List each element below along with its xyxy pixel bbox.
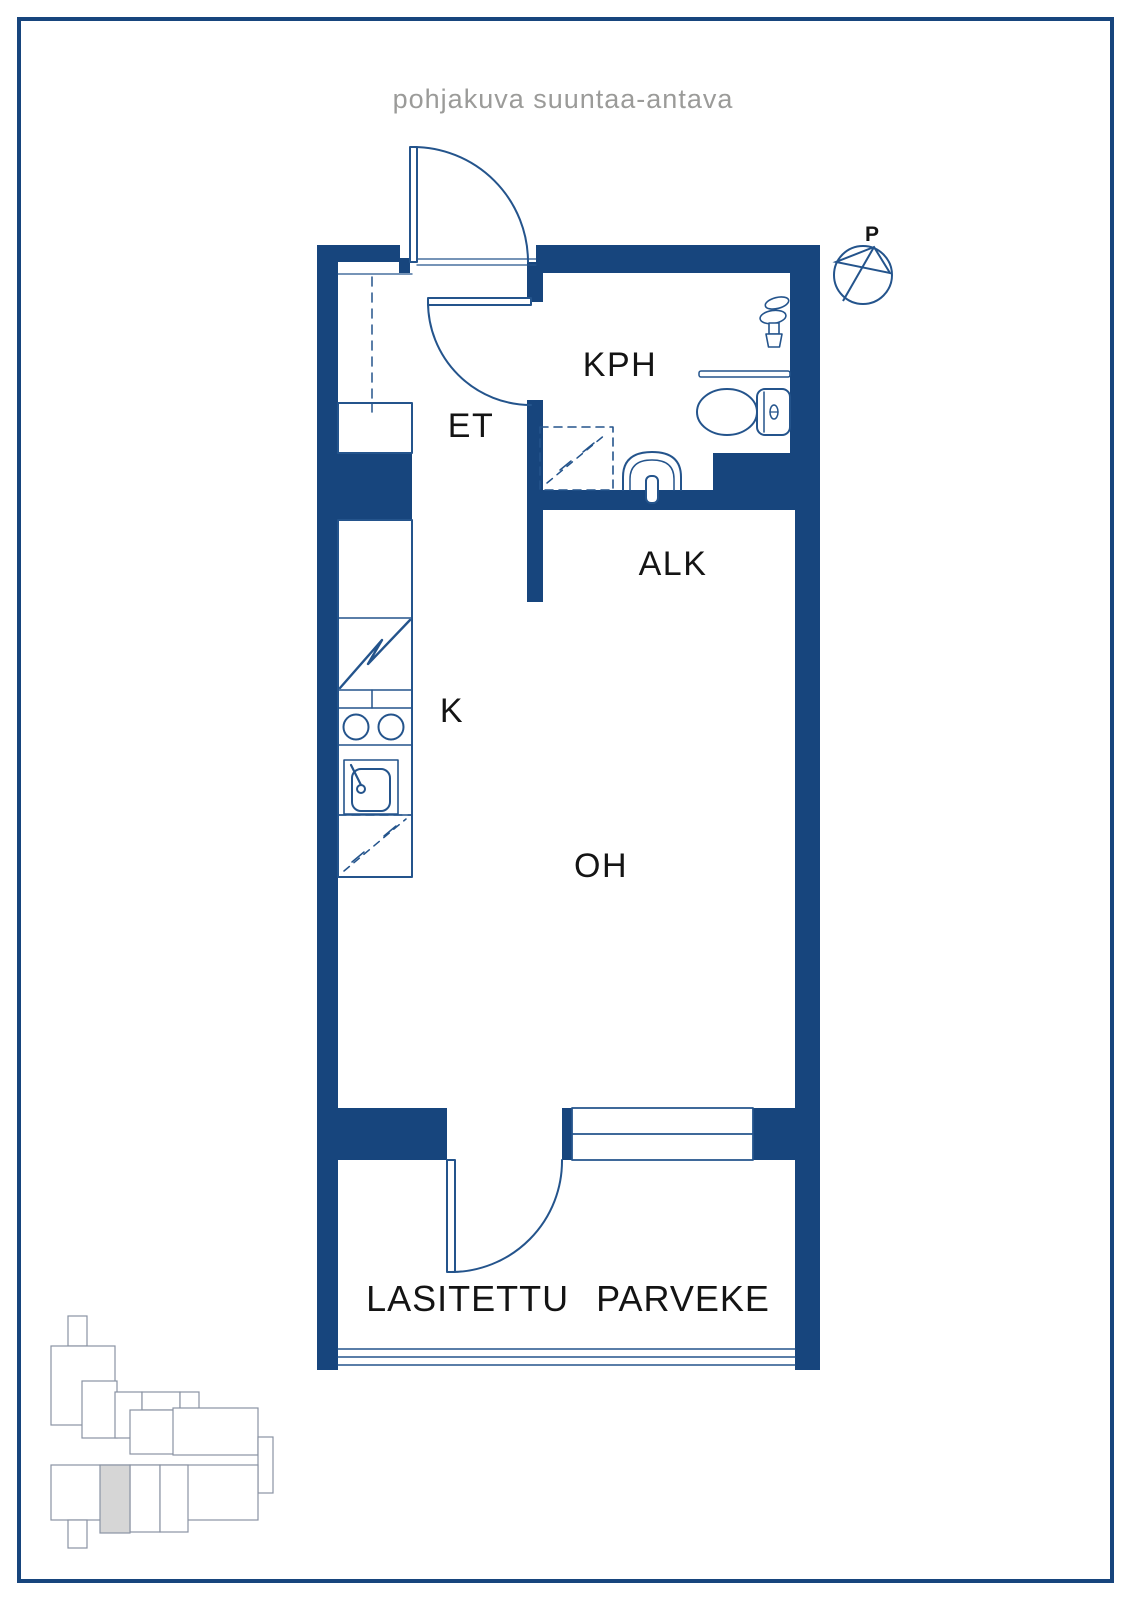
shower-handle <box>764 295 790 311</box>
label-living-room: OH <box>574 847 628 885</box>
wall-bath-left-top <box>527 262 543 302</box>
toilet-bowl <box>697 389 757 435</box>
label-kitchen: K <box>440 692 464 730</box>
bathroom-door-leaf <box>428 298 531 305</box>
wall-balcony-left <box>338 1108 447 1160</box>
label-balcony: LASITETTU PARVEKE <box>366 1278 770 1319</box>
wall-kitchen-block <box>338 453 412 520</box>
site-block <box>258 1437 273 1493</box>
label-bathroom: KPH <box>583 346 657 384</box>
site-block <box>142 1392 180 1410</box>
wall-bath-bottom <box>540 490 790 510</box>
washing-machine-ticks <box>560 443 594 470</box>
site-block <box>160 1465 188 1532</box>
bathroom-door-icon <box>428 298 531 405</box>
compass: P <box>834 223 892 304</box>
label-entrance: ET <box>448 407 494 445</box>
window-icon <box>572 1108 753 1160</box>
wall-balcony-jamb <box>562 1108 572 1160</box>
site-highlighted-unit <box>100 1465 130 1533</box>
washing-machine-diagonal <box>547 434 606 483</box>
compass-north-label: P <box>865 223 879 246</box>
wardrobe-icon <box>338 274 412 453</box>
wall-top-right <box>536 245 820 273</box>
entry-door-threshold <box>417 259 536 265</box>
balcony-glazing-icon <box>338 1349 795 1365</box>
wall-balcony-right <box>753 1108 795 1160</box>
site-block <box>173 1408 258 1455</box>
washbasin-tap <box>646 476 658 503</box>
site-block <box>82 1381 117 1438</box>
wall-right-upper <box>790 245 820 510</box>
wall-entry-step <box>399 258 410 273</box>
wall-left <box>317 245 338 1370</box>
bathroom-door-swing <box>428 302 531 405</box>
site-block <box>180 1392 199 1410</box>
label-alcove: ALK <box>639 545 708 583</box>
compass-circle <box>834 246 892 304</box>
kitchen-counter-outline <box>338 520 412 877</box>
compass-shaft <box>843 247 874 301</box>
site-block <box>130 1465 160 1532</box>
balcony-door-icon <box>447 1160 562 1272</box>
entry-door-icon <box>410 147 536 265</box>
towel-rail-icon <box>699 371 790 377</box>
shower-cup <box>766 334 782 347</box>
shower-mixer-icon <box>759 295 790 347</box>
fixtures <box>338 147 795 1365</box>
page-title: pohjakuva suuntaa-antava <box>393 84 734 114</box>
shower-stem <box>769 323 779 334</box>
wardrobe-cabinet <box>338 403 412 453</box>
compass-needle-icon <box>836 247 890 273</box>
site-block <box>68 1316 87 1346</box>
site-plan-icon <box>51 1316 273 1548</box>
wall-right-lower <box>795 510 820 1370</box>
site-block <box>68 1520 87 1548</box>
toilet-icon <box>697 389 790 435</box>
entry-door-leaf <box>410 147 417 262</box>
floorplan-page: pohjakuva suuntaa-antava <box>0 0 1131 1600</box>
kitchen-fixtures <box>338 520 412 877</box>
entry-door-swing <box>413 147 528 262</box>
balcony-door-swing <box>451 1160 562 1272</box>
balcony-door-leaf <box>447 1160 455 1272</box>
